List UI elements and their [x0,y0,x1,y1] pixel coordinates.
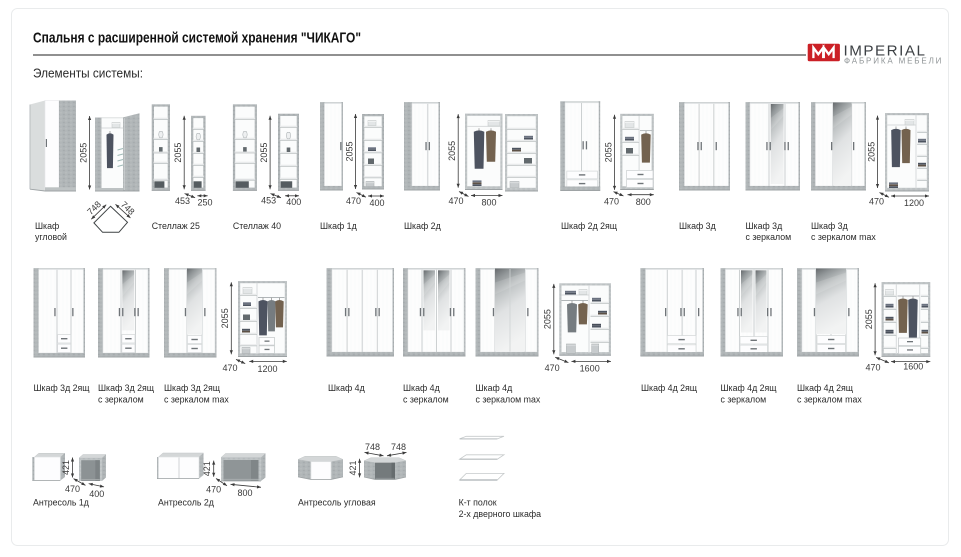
svg-text:2055: 2055 [864,309,874,329]
svg-text:Шкаф 3д: Шкаф 3д [679,221,716,231]
svg-text:2055: 2055 [603,142,613,162]
svg-text:Стеллаж 25: Стеллаж 25 [152,221,200,231]
svg-text:Шкаф 3д: Шкаф 3д [811,221,848,231]
svg-text:Шкаф 4д: Шкаф 4д [476,383,513,393]
svg-text:1600: 1600 [580,364,600,374]
svg-text:Шкаф 3д 2ящ: Шкаф 3д 2ящ [98,383,155,393]
svg-text:Шкаф 3д: Шкаф 3д [746,221,783,231]
svg-text:800: 800 [481,198,496,208]
svg-text:400: 400 [369,198,384,208]
svg-text:2055: 2055 [173,143,183,163]
svg-text:Антресоль 2д: Антресоль 2д [158,498,214,508]
svg-text:2055: 2055 [220,308,230,328]
svg-text:250: 250 [197,198,212,208]
svg-text:с зеркалом: с зеркалом [403,395,449,405]
svg-text:2055: 2055 [447,141,457,161]
svg-text:с зеркалом: с зеркалом [98,395,144,405]
svg-text:с зеркалом: с зеркалом [721,395,767,405]
svg-text:470: 470 [869,197,884,207]
svg-text:Шкаф 1д: Шкаф 1д [320,221,357,231]
svg-text:2055: 2055 [543,309,553,329]
svg-text:Стеллаж 40: Стеллаж 40 [233,221,281,231]
svg-text:с зеркалом max: с зеркалом max [797,395,862,405]
svg-text:Шкаф 2д: Шкаф 2д [404,221,441,231]
svg-text:ФАБРИКА МЕБЕЛИ: ФАБРИКА МЕБЕЛИ [844,56,943,65]
svg-text:Спальня с расширенной системой: Спальня с расширенной системой хранения … [33,30,361,47]
svg-text:400: 400 [89,489,104,499]
svg-text:1200: 1200 [904,198,924,208]
svg-text:2055: 2055 [79,143,89,163]
svg-text:с зеркалом: с зеркалом [746,232,792,242]
svg-text:470: 470 [865,362,880,372]
svg-text:Шкаф 4д 2ящ: Шкаф 4д 2ящ [641,383,698,393]
svg-text:470: 470 [545,363,560,373]
svg-text:2055: 2055 [259,143,269,163]
svg-text:1600: 1600 [903,362,923,372]
svg-text:453: 453 [175,196,190,206]
svg-text:К-т полок: К-т полок [459,498,497,508]
svg-text:Шкаф 3д 2ящ: Шкаф 3д 2ящ [34,383,91,393]
svg-text:Шкаф: Шкаф [35,221,59,231]
svg-text:470: 470 [604,197,619,207]
svg-text:748: 748 [365,442,380,452]
svg-text:Элементы системы:: Элементы системы: [33,66,143,81]
svg-text:с зеркалом max: с зеркалом max [811,232,876,242]
svg-text:Шкаф 4д 2ящ: Шкаф 4д 2ящ [797,383,854,393]
svg-text:470: 470 [65,484,80,494]
svg-text:Антресоль 1д: Антресоль 1д [33,498,89,508]
svg-text:Шкаф 4д: Шкаф 4д [403,383,440,393]
svg-text:470: 470 [206,484,221,494]
svg-text:453: 453 [261,196,276,206]
svg-text:2055: 2055 [866,142,876,162]
svg-text:Шкаф 2д 2ящ: Шкаф 2д 2ящ [561,221,618,231]
svg-text:2-х дверного шкафа: 2-х дверного шкафа [459,509,541,519]
svg-text:800: 800 [237,488,252,498]
svg-text:1200: 1200 [257,364,277,374]
svg-text:421: 421 [348,460,358,475]
svg-text:470: 470 [448,196,463,206]
svg-text:421: 421 [202,461,212,476]
svg-text:угловой: угловой [35,232,67,242]
svg-text:421: 421 [61,460,71,475]
svg-text:470: 470 [346,196,361,206]
svg-text:Шкаф 3д 2ящ: Шкаф 3д 2ящ [164,383,221,393]
svg-text:2055: 2055 [344,141,354,161]
svg-text:с зеркалом max: с зеркалом max [164,395,229,405]
svg-text:Шкаф 4д 2ящ: Шкаф 4д 2ящ [721,383,778,393]
svg-text:с зеркалом max: с зеркалом max [476,395,541,405]
svg-text:Шкаф 4д: Шкаф 4д [328,383,365,393]
svg-text:748: 748 [391,442,406,452]
svg-text:Антресоль угловая: Антресоль угловая [298,498,376,508]
svg-text:800: 800 [636,197,651,207]
svg-text:400: 400 [286,197,301,207]
svg-text:470: 470 [222,363,237,373]
